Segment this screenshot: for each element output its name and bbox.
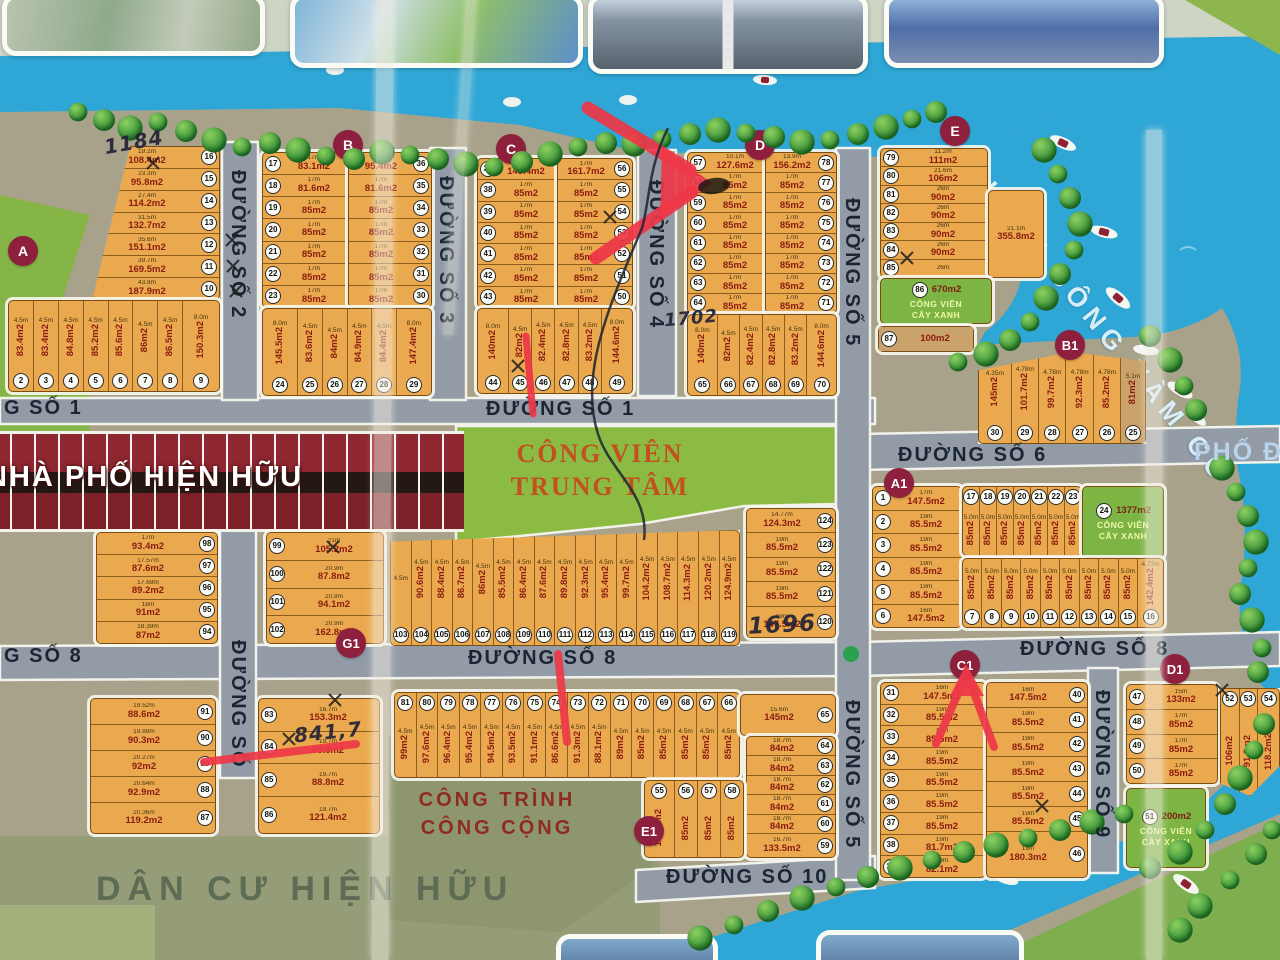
plot-69[interactable]: 4.5m83.2m269: [785, 315, 807, 395]
plot-number: 87: [881, 331, 897, 347]
plot-101[interactable]: 10120.9m94.1m2: [267, 589, 383, 617]
plot-53[interactable]: 17m85m253: [558, 223, 632, 244]
plot-area: 87.6m2: [539, 566, 549, 598]
plot-4[interactable]: 419m85.5m2: [873, 558, 961, 582]
plot-19[interactable]: 195.0m85m2: [997, 487, 1014, 555]
plot-area: 91m2: [136, 608, 160, 618]
plot-number: 10: [1023, 609, 1039, 625]
plot-area: 85m2: [724, 735, 734, 759]
plot-area: 89.2m2: [132, 586, 164, 596]
plot-36[interactable]: 3619m85.5m2: [881, 791, 985, 813]
plot-area: 187.9m2: [128, 287, 166, 297]
plot-number: 23: [265, 288, 281, 304]
plot-3[interactable]: 319m85.5m2: [873, 534, 961, 558]
plot-24[interactable]: 8.0m145.5m224: [263, 309, 298, 395]
plot-122[interactable]: 19m85.5m2122: [747, 558, 835, 582]
plot-area: 85m2: [780, 181, 804, 191]
plot-108[interactable]: 4.5m85.5m2108: [494, 531, 515, 645]
plot-52[interactable]: 17m85m252: [558, 244, 632, 265]
plot-11[interactable]: 39.7m169.5m211: [93, 256, 219, 278]
plot-61[interactable]: 18.7m84m261: [747, 795, 835, 814]
plot-57[interactable]: 5785m2: [698, 781, 721, 857]
plot-116[interactable]: 4.5m108.7m2116: [658, 531, 679, 645]
plot-22[interactable]: 225.0m85m2: [1048, 487, 1065, 555]
plot-97[interactable]: 17.57m87.6m297: [97, 555, 217, 577]
photo-bottom-2: [816, 930, 1024, 960]
plot-number: 103: [393, 627, 409, 643]
plot-25[interactable]: 4.5m83.6m225: [298, 309, 323, 395]
plot-61[interactable]: 6117m85m2: [688, 234, 764, 254]
plot-75[interactable]: 754.5m91.1m2: [524, 693, 546, 777]
plot-87[interactable]: 87100m2: [879, 327, 973, 351]
plot-79[interactable]: 7911.2m111m2: [881, 149, 987, 167]
tree-icon: [1243, 529, 1268, 554]
plot-number: 37: [883, 815, 899, 831]
block-E1-plots: 15.6m145m265: [740, 694, 836, 736]
plot-81[interactable]: 8126m90m2: [881, 186, 987, 204]
plot-area: 85m2: [1045, 575, 1055, 599]
block-G1-plots: 4.5m1034.5m90.6m21044.5m88.4m21054.5m86.…: [390, 530, 740, 646]
plot-area: 90.3m2: [128, 736, 160, 746]
plot-area: 85.5m2: [1012, 718, 1044, 728]
plot-68[interactable]: 684.5m85m2: [675, 693, 697, 777]
tree-icon: [1021, 313, 1040, 332]
plot-50[interactable]: 5017m85m2: [1127, 759, 1217, 783]
plot-48[interactable]: 4817m85m2: [1127, 710, 1217, 735]
street-label-ds2[interactable]: ĐƯỜNG SỐ 2: [226, 170, 249, 319]
plot-7[interactable]: 4.5m86m27: [133, 301, 158, 391]
plot-24[interactable]: 24: [1096, 503, 1112, 519]
block-M94-plots: 17m93.4m29817.57m87.6m29717.69m89.2m2961…: [96, 532, 218, 644]
plot-66[interactable]: 4.5m82m266: [718, 315, 740, 395]
plot-area: 85m2: [1065, 575, 1075, 599]
plot-48[interactable]: 4.5m83.2m248: [579, 309, 602, 393]
plot-27[interactable]: 4.5m84.9m227: [348, 309, 373, 395]
plot-20[interactable]: 2017m85m2: [263, 219, 347, 241]
plot-104[interactable]: 4.5m90.6m2104: [412, 531, 433, 645]
street-label-pho-di[interactable]: PHỐ ĐI: [1194, 438, 1280, 467]
plot-area: 85m2: [681, 816, 691, 840]
plot-111[interactable]: 4.5m89.8m2111: [555, 531, 576, 645]
plot-85[interactable]: 8519.7m88.8m2: [259, 764, 379, 797]
plot-number: 3: [38, 373, 54, 389]
plot-number: 96: [199, 580, 215, 596]
plot-90[interactable]: 19.89m90.3m290: [91, 725, 215, 751]
tree-icon: [259, 132, 281, 154]
plot-area: 85m2: [659, 735, 669, 759]
plot-area: 180.3m2: [1009, 853, 1047, 863]
tree-icon: [93, 109, 115, 131]
plot-area: 85m2: [727, 816, 737, 840]
plot-number: 39: [480, 204, 496, 220]
plot-95[interactable]: 18m91m295: [97, 600, 217, 622]
plot-2[interactable]: 4.5m83.4m22: [9, 301, 34, 391]
plot-number: 116: [660, 627, 676, 643]
plot-13[interactable]: 5.0m85m213: [1080, 559, 1099, 627]
plot-119[interactable]: 4.5m124.9m2119: [720, 531, 740, 645]
plot-area: 85.5m2: [926, 822, 958, 832]
plot-8[interactable]: 5.0m85m28: [982, 559, 1001, 627]
plot-99[interactable]: 9921m105.2m2: [267, 533, 383, 561]
plot-75[interactable]: 17m85m275: [766, 213, 836, 233]
plot-110[interactable]: 4.5m87.6m2110: [535, 531, 556, 645]
tree-icon: [1221, 871, 1240, 890]
plot-114[interactable]: 4.5m99.7m2114: [617, 531, 638, 645]
plot-area: 86.4m2: [519, 566, 529, 598]
plot-area: 132.7m2: [128, 221, 166, 231]
plot-area: 94.1m2: [318, 600, 350, 610]
plot-49[interactable]: 4917m85m2: [1127, 735, 1217, 760]
plot-56[interactable]: 17m161.7m256: [558, 159, 632, 180]
plot-113[interactable]: 4.5m95.4m2113: [596, 531, 617, 645]
plot-100[interactable]: 10020.9m87.8m2: [267, 561, 383, 589]
plot-number: 83: [883, 223, 899, 239]
plot-46[interactable]: 4.5m82.4m246: [532, 309, 555, 393]
plot-area: 83.2m2: [585, 329, 595, 361]
plot-79[interactable]: 794.5m96.4m2: [438, 693, 460, 777]
plot-number: 120: [817, 614, 833, 630]
plot-29[interactable]: 8.0m147.4m229: [397, 309, 431, 395]
plot-number: 22: [1048, 489, 1064, 505]
plot-area: 88.4m2: [437, 566, 447, 598]
plot-109[interactable]: 4.5m86.4m2109: [514, 531, 535, 645]
plot-18[interactable]: 185.0m85m2: [980, 487, 997, 555]
plot-number: 106: [454, 627, 470, 643]
plot-60[interactable]: 18.7m84m260: [747, 815, 835, 834]
plot-81[interactable]: 814.5m99m2: [395, 693, 417, 777]
plot-number: 44: [485, 375, 501, 391]
plot-41[interactable]: 19m85.5m241: [987, 708, 1087, 733]
street-label-ds1[interactable]: ĐƯỜNG SỐ 1: [486, 398, 635, 421]
plot-17[interactable]: 175.0m85m2: [963, 487, 980, 555]
plot-10[interactable]: 43.8m187.9m210: [93, 278, 219, 299]
plot-21[interactable]: 2117m85m2: [263, 242, 347, 264]
plot-67[interactable]: 674.5m85m2: [697, 693, 719, 777]
plot-77[interactable]: 774.5m94.5m2: [481, 693, 503, 777]
plot-98[interactable]: 17m93.4m298: [97, 533, 217, 555]
plot-112[interactable]: 4.5m92.3m2112: [576, 531, 597, 645]
plot-42[interactable]: 4217m85m2: [478, 265, 556, 286]
plot-72[interactable]: 724.5m88.1m2: [589, 693, 611, 777]
plot-66[interactable]: 664.5m85m2: [718, 693, 739, 777]
tree-icon: [511, 151, 533, 173]
plot-15[interactable]: 5.0m85m215: [1119, 559, 1138, 627]
plot-82[interactable]: 8226m90m2: [881, 204, 987, 222]
plot-area: 83.4m2: [41, 324, 51, 356]
plot-number: 80: [419, 695, 435, 711]
plot-29[interactable]: 4.78m101.7m229: [1012, 353, 1039, 443]
plot-87[interactable]: 20.36m119.2m287: [91, 803, 215, 833]
plot-12[interactable]: 35.6m151.1m212: [93, 234, 219, 256]
plot-107[interactable]: 4.5m86m2107: [473, 531, 494, 645]
plot-62[interactable]: 6217m85m2: [688, 254, 764, 274]
plot-26[interactable]: 4.5m84m226: [323, 309, 348, 395]
tree-icon: [1237, 505, 1259, 527]
plot-area: 85m2: [302, 228, 326, 238]
plot-40[interactable]: 4017m85m2: [478, 223, 556, 244]
central-park-line1: CÔNG VIÊN: [470, 438, 730, 471]
plot-63[interactable]: 18.7m84m263: [747, 756, 835, 775]
plot-area: 88.8m2: [312, 778, 344, 788]
plot-121[interactable]: 19m85.5m2121: [747, 582, 835, 606]
block-D-plots: 5710.1m127.6m25817m85m25917m85m26017m85m…: [687, 152, 765, 314]
plot-74[interactable]: 17m85m274: [766, 234, 836, 254]
plot-70[interactable]: 704.5m85m2: [632, 693, 654, 777]
plot-25[interactable]: 5.1m81m225: [1121, 353, 1145, 443]
plot-5[interactable]: 519m85.5m2: [873, 581, 961, 605]
plot-area: 144.6m2: [817, 330, 827, 368]
plot-44[interactable]: 19m85.5m244: [987, 782, 1087, 807]
plot-3[interactable]: 4.5m83.4m23: [34, 301, 59, 391]
plot-9[interactable]: 5.0m85m29: [1002, 559, 1021, 627]
plot-number: 25: [1125, 425, 1141, 441]
plot-number: 3: [875, 537, 891, 553]
plot-area: 140m2: [697, 334, 707, 364]
plot-27[interactable]: 4.78m92.3m227: [1066, 353, 1093, 443]
plot-number: 2: [875, 514, 891, 530]
plot-10[interactable]: 5.0m85m210: [1021, 559, 1040, 627]
plot-37[interactable]: 3719m85.5m2: [881, 813, 985, 835]
tree-icon: [1049, 165, 1068, 184]
plot-89[interactable]: 20.27m92m289: [91, 751, 215, 777]
plot-76[interactable]: 764.5m93.5m2: [503, 693, 525, 777]
plot-41[interactable]: 4117m85m2: [478, 244, 556, 265]
plot-76[interactable]: 17m85m276: [766, 193, 836, 213]
plot-38[interactable]: 3817m85m2: [478, 180, 556, 201]
plot-21[interactable]: 215.0m85m2: [1031, 487, 1048, 555]
plot-area: 82.4m2: [538, 329, 548, 361]
plot-area: 85m2: [637, 735, 647, 759]
tree-icon: [1167, 839, 1192, 864]
plot-54[interactable]: 17m85m254: [558, 202, 632, 223]
plot-105[interactable]: 4.5m88.4m2105: [432, 531, 453, 645]
block-E-plots: 21.1m355.8m2: [988, 190, 1044, 278]
plot-number: 21: [265, 244, 281, 260]
plot-number: 66: [721, 695, 737, 711]
street-label-ds6[interactable]: ĐƯỜNG SỐ 6: [898, 444, 1047, 467]
plot-80[interactable]: 804.5m97.6m2: [417, 693, 439, 777]
plot-number: 72: [818, 275, 834, 291]
plot-area: 85m2: [723, 221, 747, 231]
street-label-ds5-bottom[interactable]: ĐƯỜNG SỐ 5: [840, 700, 863, 849]
plot-unnumbered[interactable]: 21.1m355.8m2: [989, 191, 1043, 277]
plot-115[interactable]: 4.5m104.2m2115: [637, 531, 658, 645]
existing-residents-label: DÂN CƯ HIỆN HỮU: [96, 870, 514, 909]
plot-58[interactable]: 5885m2: [721, 781, 743, 857]
tree-icon: [621, 131, 646, 156]
plot-area: 84m2: [770, 764, 794, 774]
plot-20[interactable]: 205.0m85m2: [1014, 487, 1031, 555]
plot-area: 82.4m2: [746, 333, 756, 365]
plot-33[interactable]: 3319m85.5m2: [881, 726, 985, 748]
plot-65[interactable]: 15.6m145m265: [741, 695, 835, 735]
plot-number: 64: [817, 738, 833, 754]
plot-number: 117: [680, 627, 696, 643]
plot-42[interactable]: 19m85.5m242: [987, 733, 1087, 758]
plot-60[interactable]: 6017m85m2: [688, 213, 764, 233]
plot-area: 85m2: [702, 735, 712, 759]
green-park-label: CÔNG VIÊN: [910, 300, 962, 310]
plot-14[interactable]: 5.0m85m214: [1099, 559, 1118, 627]
plot-77[interactable]: 17m85m277: [766, 173, 836, 193]
plot-number: 42: [480, 268, 496, 284]
plot-6[interactable]: 4.5m85.6m26: [109, 301, 134, 391]
street-label-ds8-left[interactable]: G SỐ 8: [4, 645, 83, 668]
plot-51[interactable]: 17m85m251: [558, 265, 632, 286]
plot-area: 85.5m2: [1012, 792, 1044, 802]
plot-34[interactable]: 3419m85.5m2: [881, 748, 985, 770]
plot-106[interactable]: 4.5m86.7m2106: [453, 531, 474, 645]
plot-number: 74: [818, 235, 834, 251]
plot-85[interactable]: 8526m: [881, 260, 987, 277]
plot-78[interactable]: 784.5m95.4m2: [460, 693, 482, 777]
plot-8[interactable]: 4.5m86.5m28: [158, 301, 183, 391]
plot-70[interactable]: 8.0m144.6m270: [807, 315, 836, 395]
plot-58[interactable]: 5817m85m2: [688, 173, 764, 193]
plot-28[interactable]: 4.78m99.7m228: [1039, 353, 1066, 443]
plot-number: 98: [199, 536, 215, 552]
plot-35[interactable]: 3519m85.5m2: [881, 770, 985, 792]
plot-123[interactable]: 19m85.5m2123: [747, 533, 835, 557]
plot-45[interactable]: 4.5m82m245: [509, 309, 532, 393]
plot-62[interactable]: 18.7m84m262: [747, 776, 835, 795]
plot-49[interactable]: 8.0m144.6m249: [602, 309, 632, 393]
plot-area: 91.3m2: [573, 731, 583, 763]
street-label-ds10[interactable]: ĐƯỜNG SỐ 10: [666, 866, 828, 889]
plot-23[interactable]: 235.0m85m2: [1065, 487, 1081, 555]
plot-73[interactable]: 734.5m91.3m2: [568, 693, 590, 777]
plot-91[interactable]: 19.52m88.6m291: [91, 699, 215, 725]
plot-56[interactable]: 5685m2: [675, 781, 698, 857]
plot-45[interactable]: 19m85.5m245: [987, 807, 1087, 832]
plot-31[interactable]: 3116m147.5m2: [881, 683, 985, 705]
plot-number: 38: [883, 837, 899, 853]
plot-43[interactable]: 4317m85m2: [478, 287, 556, 307]
plot-64[interactable]: 18.7m84m264: [747, 737, 835, 756]
road-ds1[interactable]: [0, 398, 875, 424]
street-label-ds5-top[interactable]: ĐƯỜNG SỐ 5: [840, 198, 863, 347]
plot-number: 25: [302, 377, 318, 393]
tree-icon: [999, 329, 1021, 351]
plot-dim: 4.5m: [681, 557, 695, 564]
plot-area: 82m2: [723, 337, 733, 361]
plot-72[interactable]: 17m85m272: [766, 274, 836, 294]
plot-59[interactable]: 16.7m133.5m259: [747, 834, 835, 857]
plot-71[interactable]: 714.5m89m2: [611, 693, 633, 777]
street-label-ds7[interactable]: ĐƯỜNG SỐ: [226, 640, 249, 769]
plot-5[interactable]: 4.5m85.2m25: [84, 301, 109, 391]
plot-area: 85m2: [723, 282, 747, 292]
plot-area: 82.8m2: [768, 333, 778, 365]
street-label-ds9[interactable]: ĐƯỜNG SỐ 9: [1090, 690, 1113, 839]
plot-area: 105.2m2: [315, 545, 353, 555]
plot-118[interactable]: 4.5m120.2m2118: [699, 531, 720, 645]
plot-12[interactable]: 5.0m85m212: [1060, 559, 1079, 627]
plot-67[interactable]: 4.5m82.4m267: [740, 315, 762, 395]
plot-number: 60: [817, 816, 833, 832]
street-label-ds8-center[interactable]: ĐƯỜNG SỐ 8: [468, 647, 617, 670]
plot-11[interactable]: 5.0m85m211: [1041, 559, 1060, 627]
plot-71[interactable]: 17m85m271: [766, 294, 836, 313]
plot-area: 85m2: [1026, 575, 1036, 599]
plot-74[interactable]: 744.5m86.6m2: [546, 693, 568, 777]
plot-number: 57: [690, 155, 706, 171]
plot-96[interactable]: 17.69m89.2m296: [97, 577, 217, 599]
street-label-ds1-left[interactable]: G SỐ 1: [4, 397, 83, 420]
plot-40[interactable]: 16m147.5m240: [987, 683, 1087, 708]
plot-area: 150.3m2: [196, 321, 206, 359]
plot-44[interactable]: 8.0m140m244: [478, 309, 509, 393]
plot-22[interactable]: 2217m85m2: [263, 264, 347, 286]
plot-area: 147.5m2: [907, 497, 945, 507]
plot-59[interactable]: 5917m85m2: [688, 193, 764, 213]
plot-55[interactable]: 17m85m255: [558, 180, 632, 201]
plot-number: 121: [817, 586, 833, 602]
plot-43[interactable]: 19m85.5m243: [987, 757, 1087, 782]
plot-47[interactable]: 4715m133m2: [1127, 685, 1217, 710]
plot-19[interactable]: 1917m85m2: [263, 197, 347, 219]
plot-4[interactable]: 4.5m84.8m24: [59, 301, 84, 391]
tree-icon: [69, 103, 88, 122]
plot-number: 6: [875, 608, 891, 624]
plot-68[interactable]: 4.5m82.8m268: [763, 315, 785, 395]
plot-39[interactable]: 3917m85m2: [478, 202, 556, 223]
plot-124[interactable]: 14.77m124.3m2124: [747, 509, 835, 533]
plot-area: 156.2m2: [773, 161, 811, 171]
plot-26[interactable]: 4.78m85.2m226: [1094, 353, 1121, 443]
plot-number: 67: [743, 377, 759, 393]
plot-area: 85m2: [723, 241, 747, 251]
street-label-ds4[interactable]: ĐƯỜNG SỐ 4: [644, 180, 667, 329]
plot-7[interactable]: 5.0m85m27: [963, 559, 982, 627]
plot-number: 62: [690, 255, 706, 271]
plot-88[interactable]: 20.64m92.9m288: [91, 777, 215, 803]
plot-area: 91.1m2: [530, 731, 540, 763]
plot-9[interactable]: 8.0m150.3m29: [183, 301, 219, 391]
plot-63[interactable]: 6317m85m2: [688, 274, 764, 294]
plot-117[interactable]: 4.5m114.3m2117: [678, 531, 699, 645]
plot-18[interactable]: 1817m81.6m2: [263, 175, 347, 197]
block-D-plots: 13.9m156.2m27817m85m27717m85m27617m85m27…: [765, 152, 837, 314]
tree-icon: [1239, 607, 1264, 632]
plot-32[interactable]: 3219m85.5m2: [881, 705, 985, 727]
plot-number: 77: [818, 175, 834, 191]
plot-78[interactable]: 13.9m156.2m278: [766, 153, 836, 173]
tree-icon: [1175, 377, 1194, 396]
plot-6[interactable]: 616m147.5m2: [873, 605, 961, 628]
plot-80[interactable]: 8021.6m106m2: [881, 167, 987, 185]
plot-47[interactable]: 4.5m82.8m247: [555, 309, 578, 393]
tree-icon: [595, 132, 617, 154]
plot-2[interactable]: 219m85.5m2: [873, 511, 961, 535]
plot-86[interactable]: 8619.7m121.4m2: [259, 797, 379, 833]
plot-73[interactable]: 17m85m273: [766, 254, 836, 274]
plot-23[interactable]: 2317m85m2: [263, 286, 347, 307]
plot-103[interactable]: 4.5m103: [391, 531, 412, 645]
plot-84[interactable]: 8426m90m2: [881, 241, 987, 259]
plot-area: 133m2: [1166, 695, 1196, 705]
plot-69[interactable]: 694.5m85m2: [654, 693, 676, 777]
plot-94[interactable]: 18.39m87m294: [97, 622, 217, 643]
plot-86[interactable]: 86: [912, 282, 928, 298]
green-park-label: CÂY XANH: [912, 311, 960, 321]
plot-number: 23: [1065, 489, 1081, 505]
tree-icon: [343, 148, 365, 170]
plot-area: 97.6m2: [422, 731, 432, 763]
plot-83[interactable]: 8326m90m2: [881, 223, 987, 241]
plot-50[interactable]: 17m85m250: [558, 287, 632, 307]
plot-number: 84: [883, 242, 899, 258]
